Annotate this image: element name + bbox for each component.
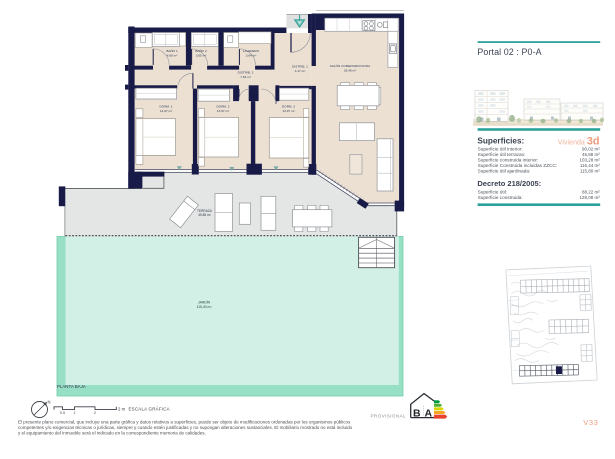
svg-text:7,64 m²: 7,64 m² <box>240 75 251 79</box>
svg-text:Superficie útil terrazas:: Superficie útil terrazas: <box>478 152 526 157</box>
svg-text:103,28 m²: 103,28 m² <box>580 157 601 162</box>
svg-text:A: A <box>425 407 433 419</box>
svg-text:PROVISIONAL: PROVISIONAL <box>370 414 406 419</box>
svg-text:y el equipamiento del inmueble: y el equipamiento del inmueble será el i… <box>18 431 206 436</box>
svg-text:DISTRIB. 2: DISTRIB. 2 <box>238 71 254 75</box>
svg-text:DORM. 3: DORM. 3 <box>282 105 295 109</box>
svg-text:2: 2 <box>94 411 96 415</box>
svg-text:LAVADERO: LAVADERO <box>243 49 260 53</box>
svg-text:BAÑO 2: BAÑO 2 <box>195 48 207 53</box>
svg-text:Superficie Construida incluida: Superficie Construida incluidas ZZCC: <box>478 163 557 168</box>
svg-text:Superficie útil ajardinada:: Superficie útil ajardinada: <box>478 169 531 174</box>
svg-text:45,85 m²: 45,85 m² <box>198 213 211 217</box>
svg-text:El presente plano comercial, q: El presente plano comercial, que incluye… <box>18 420 351 425</box>
svg-text:2 m: 2 m <box>118 407 126 412</box>
svg-text:DORM. 2: DORM. 2 <box>217 105 230 109</box>
svg-text:Portal 02 : P0-A: Portal 02 : P0-A <box>477 47 541 57</box>
svg-text:115,80 m²: 115,80 m² <box>580 169 600 174</box>
svg-text:14,97 m²: 14,97 m² <box>160 109 172 113</box>
svg-text:128,08 m²: 128,08 m² <box>580 195 601 200</box>
svg-text:BAÑO 1: BAÑO 1 <box>166 48 178 53</box>
svg-text:Superficie construida interior: Superficie construida interior: <box>478 157 539 162</box>
svg-text:Superficies:: Superficies: <box>477 136 524 145</box>
svg-text:competentes y/o exigencias téc: competentes y/o exigencias técnicas o ju… <box>18 425 353 430</box>
svg-text:3,65 m²: 3,65 m² <box>196 54 207 58</box>
svg-text:13,97 m²: 13,97 m² <box>282 109 294 113</box>
svg-text:V33: V33 <box>583 418 598 427</box>
svg-text:1: 1 <box>74 411 76 415</box>
svg-text:Superficie construida:: Superficie construida: <box>478 195 523 200</box>
svg-text:SALÓN COMEDOR/COCINA: SALÓN COMEDOR/COCINA <box>330 63 371 68</box>
svg-text:Superficie útil interior:: Superficie útil interior: <box>478 146 523 151</box>
svg-text:4,17 m²: 4,17 m² <box>295 69 306 73</box>
svg-text:N: N <box>48 400 51 405</box>
svg-text:35,48 m²: 35,48 m² <box>344 69 356 73</box>
svg-text:ESCALA GRÁFICA: ESCALA GRÁFICA <box>129 407 170 412</box>
svg-text:DORM. 1: DORM. 1 <box>160 105 173 109</box>
svg-text:0.5: 0.5 <box>60 411 65 415</box>
svg-text:4,60 m²: 4,60 m² <box>167 54 178 58</box>
svg-text:Decreto 218/2005:: Decreto 218/2005: <box>477 179 541 188</box>
svg-text:13,97 m²: 13,97 m² <box>217 109 229 113</box>
svg-text:Superficie útil:: Superficie útil: <box>478 189 507 194</box>
svg-text:116,44 m²: 116,44 m² <box>580 163 600 168</box>
svg-text:115,40 m²: 115,40 m² <box>196 305 212 309</box>
svg-text:B: B <box>413 407 421 419</box>
svg-text:JARDÍN: JARDÍN <box>198 300 211 304</box>
svg-text:3,64 m²: 3,64 m² <box>246 54 257 58</box>
svg-text:45,88 m²: 45,88 m² <box>582 152 600 157</box>
svg-text:PLANTA BAJA: PLANTA BAJA <box>57 384 86 389</box>
svg-text:90,02 m²: 90,02 m² <box>582 146 600 151</box>
svg-text:DISTRIB. 1: DISTRIB. 1 <box>292 65 308 69</box>
svg-text:88,22 m²: 88,22 m² <box>582 189 600 194</box>
